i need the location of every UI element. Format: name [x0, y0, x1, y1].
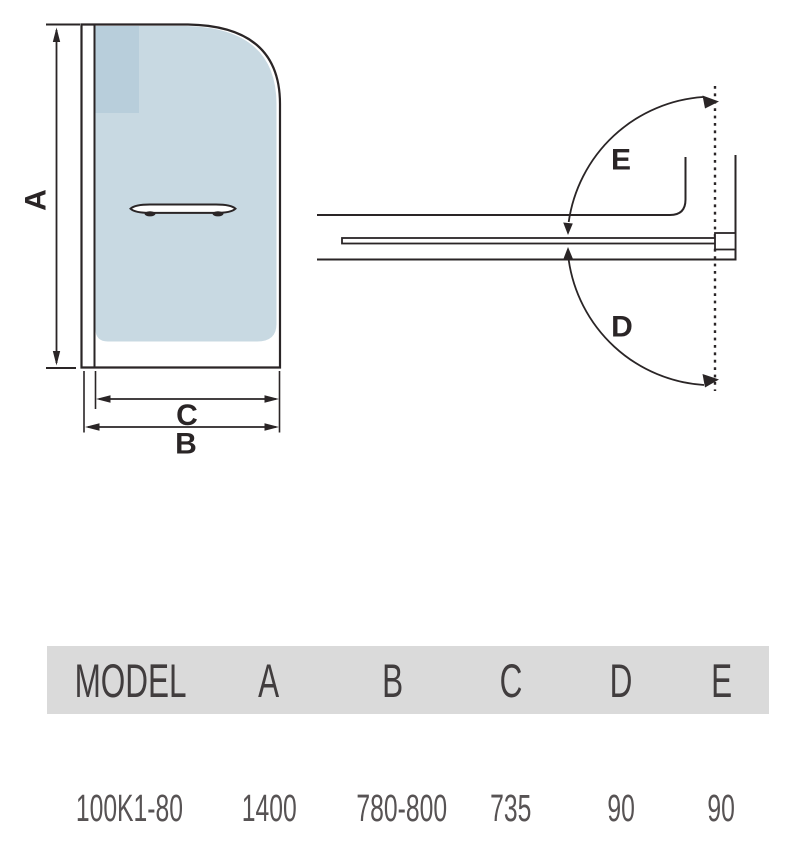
dim-b-arrow-left — [85, 423, 100, 430]
arc-e-arrow-wall — [703, 96, 720, 109]
spec-header-a: A — [206, 653, 332, 708]
towel-bar-foot-right — [213, 211, 224, 216]
spec-table-header-row: MODEL A B C D E — [47, 646, 769, 714]
bath-screen-spec-sheet: A C B — [0, 0, 788, 846]
dim-b-arrow-right — [265, 423, 280, 430]
dim-c-arrow-right — [265, 395, 280, 402]
arc-e-curve — [569, 97, 703, 222]
spec-value-e: 90 — [674, 788, 769, 831]
arc-d-arrow-wall — [703, 374, 720, 388]
arc-d-arrow-panel — [563, 247, 573, 260]
wall-bracket — [715, 233, 736, 250]
spec-header-model: MODEL — [47, 653, 206, 708]
spec-value-model: 100K1-80 — [47, 788, 206, 831]
spec-value-c: 735 — [453, 788, 569, 831]
spec-header-c: C — [453, 653, 569, 708]
panel-plan-bar — [342, 238, 716, 244]
arc-d-curve — [569, 260, 704, 385]
spec-header-b: B — [332, 653, 453, 708]
dim-c-arrow-left — [96, 395, 111, 402]
top-view: E D — [317, 86, 736, 391]
spec-value-b: 780-800 — [332, 788, 453, 831]
label-a: A — [20, 189, 53, 211]
dim-a-arrow-up — [53, 28, 60, 43]
spec-header-d: D — [568, 653, 673, 708]
towel-bar-foot-left — [145, 211, 156, 216]
spec-table: MODEL A B C D E 100K1-80 1400 780-800 73… — [47, 646, 769, 830]
label-d: D — [611, 311, 633, 344]
arc-e-arrow-panel — [563, 223, 573, 236]
dimension-c: C — [96, 371, 280, 432]
spec-value-a: 1400 — [206, 788, 332, 831]
spec-value-d: 90 — [568, 788, 673, 831]
spec-header-e: E — [674, 653, 769, 708]
label-b: B — [175, 428, 197, 461]
swing-arc-d: D — [563, 247, 719, 388]
dimension-diagram: A C B — [0, 0, 788, 480]
dim-a-arrow-down — [53, 351, 60, 366]
dimension-a: A — [20, 25, 81, 369]
spec-table-data-row: 100K1-80 1400 780-800 735 90 90 — [47, 788, 769, 830]
glass-reflection-shade — [96, 26, 140, 113]
label-e: E — [611, 144, 631, 177]
front-view: A C B — [20, 25, 281, 461]
